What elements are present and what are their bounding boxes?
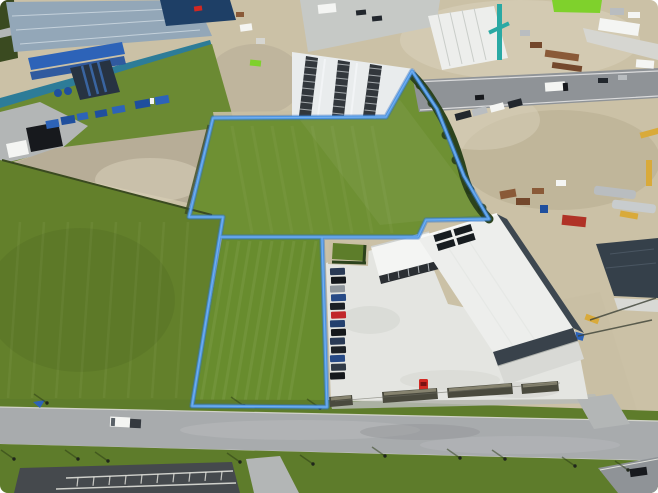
street-light-pole [573, 464, 576, 467]
equipment [530, 42, 542, 48]
car [475, 95, 484, 101]
van-windshield [111, 418, 115, 426]
parked-car [331, 276, 346, 284]
yellow-crane [646, 160, 652, 186]
parked-car [331, 329, 346, 337]
equipment [628, 12, 640, 18]
street-light-pole [12, 457, 15, 460]
parked-car [331, 346, 346, 354]
parked-car [330, 303, 345, 311]
parked-car [330, 337, 345, 345]
blue-tank [64, 87, 72, 95]
red-car-windshield [421, 382, 427, 386]
white-truck [636, 59, 655, 69]
aerial-photo-stage [0, 0, 658, 493]
lime-green-building [552, 0, 602, 13]
blue-tank [54, 89, 62, 97]
street-light-pole [106, 459, 109, 462]
equipment [540, 205, 548, 213]
parked-car [331, 294, 346, 302]
car [618, 75, 627, 80]
truck-cab [563, 83, 569, 91]
street-light-pole [45, 401, 48, 404]
equipment [610, 8, 624, 15]
equipment [256, 38, 265, 44]
parked-car [330, 285, 345, 293]
grass-square [332, 243, 365, 261]
parked-car [331, 363, 346, 371]
rusty-digger [532, 188, 544, 194]
aerial-photo [0, 0, 658, 493]
equipment [236, 12, 244, 17]
street-light-pole [311, 462, 314, 465]
car [598, 78, 608, 83]
truck-cab [150, 98, 154, 104]
street-light-pole [626, 468, 629, 471]
street-light-pole [76, 457, 79, 460]
street-light-pole [503, 457, 506, 460]
street-light-pole [458, 456, 461, 459]
parked-car [330, 372, 345, 380]
van-trailer [130, 419, 141, 429]
green-digger [250, 59, 262, 66]
white-truck [318, 3, 337, 14]
equipment [520, 30, 530, 36]
car [372, 15, 382, 21]
equipment [556, 180, 566, 186]
street-light-pole [238, 460, 241, 463]
parked-car [330, 268, 345, 276]
parked-car [330, 320, 345, 328]
parked-car [331, 311, 346, 319]
parked-car [330, 355, 345, 363]
teal-crane-mast [497, 4, 502, 60]
apron-stain [340, 306, 400, 334]
road-patch [360, 424, 480, 440]
car [356, 9, 366, 15]
rusty-digger [516, 198, 530, 205]
street-light-pole [383, 454, 386, 457]
white-truck [545, 81, 566, 91]
